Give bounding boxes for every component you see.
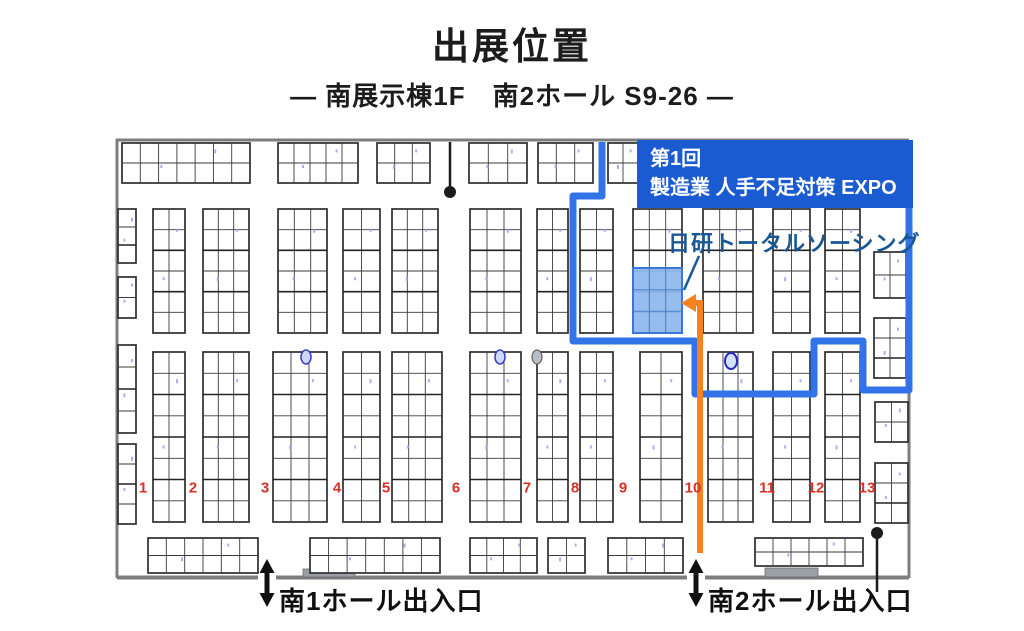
booth-block	[875, 463, 908, 523]
booth-block	[377, 143, 430, 183]
aisle-number: 3	[261, 481, 269, 496]
booth-block	[203, 352, 249, 522]
aisle-number: 4	[333, 481, 341, 496]
booth-block	[343, 209, 380, 333]
exhibition-map-page: 出展位置 ― 南展示棟1F 南2ホール S9-26 ― 第1回 製造業 人手不足…	[0, 0, 1024, 631]
aisle-number: 10	[685, 481, 702, 496]
booth-block	[343, 352, 380, 522]
booth-block	[153, 352, 185, 522]
booth-block	[118, 209, 136, 263]
booth-block	[608, 143, 638, 183]
expo-banner: 第1回 製造業 人手不足対策 EXPO	[637, 140, 913, 208]
expo-banner-line2: 製造業 人手不足対策 EXPO	[650, 175, 913, 202]
booth-block	[273, 352, 327, 522]
aisle-number: 1	[139, 481, 147, 496]
booth-block	[310, 538, 440, 573]
booth-block	[708, 352, 753, 522]
page-subtitle: ― 南展示棟1F 南2ホール S9-26 ―	[0, 76, 1024, 113]
booth-block	[825, 352, 860, 522]
booth-block	[278, 209, 327, 333]
aisle-number: 13	[859, 481, 876, 496]
pillar-marker	[444, 142, 456, 198]
booth-block	[537, 209, 568, 333]
booth-block	[153, 209, 185, 333]
column-marker	[301, 350, 311, 364]
exhibitor-booth-highlight	[633, 268, 682, 333]
column-marker	[495, 350, 505, 364]
booth-block	[470, 352, 521, 522]
booth-block	[755, 538, 863, 566]
booth-block	[118, 277, 136, 318]
booth-block	[580, 209, 613, 333]
exhibitor-label-leader-line	[684, 256, 699, 290]
column-marker	[532, 350, 542, 364]
booth-block	[875, 402, 908, 442]
booth-block	[469, 143, 527, 183]
booth-block	[537, 352, 568, 522]
aisle-number: 2	[189, 481, 197, 496]
aisle-number: 8	[571, 481, 579, 496]
booth-block	[874, 318, 906, 378]
entrance-ramp	[765, 568, 818, 577]
booth-block	[278, 143, 358, 183]
booth-block	[773, 352, 810, 522]
booth-block	[122, 143, 250, 183]
entrance1-updown-arrow-icon	[260, 559, 275, 607]
booth-block	[640, 352, 682, 522]
column-marker	[725, 353, 737, 369]
aisle-number: 9	[619, 481, 627, 496]
aisle-number: 6	[452, 481, 460, 496]
aisle-number: 7	[523, 481, 531, 496]
booth-block	[470, 209, 521, 333]
booth-block	[392, 209, 438, 333]
south2-entrance-label: 南2ホール出入口	[708, 581, 912, 618]
booth-block	[470, 538, 537, 573]
aisle-number: 12	[808, 481, 825, 496]
booth-block	[608, 538, 683, 573]
booth-block	[118, 345, 136, 433]
booth-block	[148, 538, 258, 573]
aisle-number: 5	[382, 481, 390, 496]
booth-block	[874, 252, 906, 298]
page-title: 出展位置	[0, 16, 1024, 70]
booth-arrow	[681, 294, 700, 553]
booth-block	[580, 352, 613, 522]
expo-banner-line1: 第1回	[650, 146, 913, 173]
booth-block	[118, 444, 136, 524]
south1-entrance-label: 南1ホール出入口	[279, 581, 483, 618]
exhibitor-name-label: 日研トータルソーシング	[668, 226, 921, 258]
aisle-number: 11	[759, 481, 775, 496]
booth-block	[392, 352, 442, 522]
booth-block	[203, 209, 249, 333]
entrance2-updown-arrow-icon	[689, 559, 704, 607]
booth-block	[538, 143, 593, 183]
booth-block	[548, 538, 585, 573]
